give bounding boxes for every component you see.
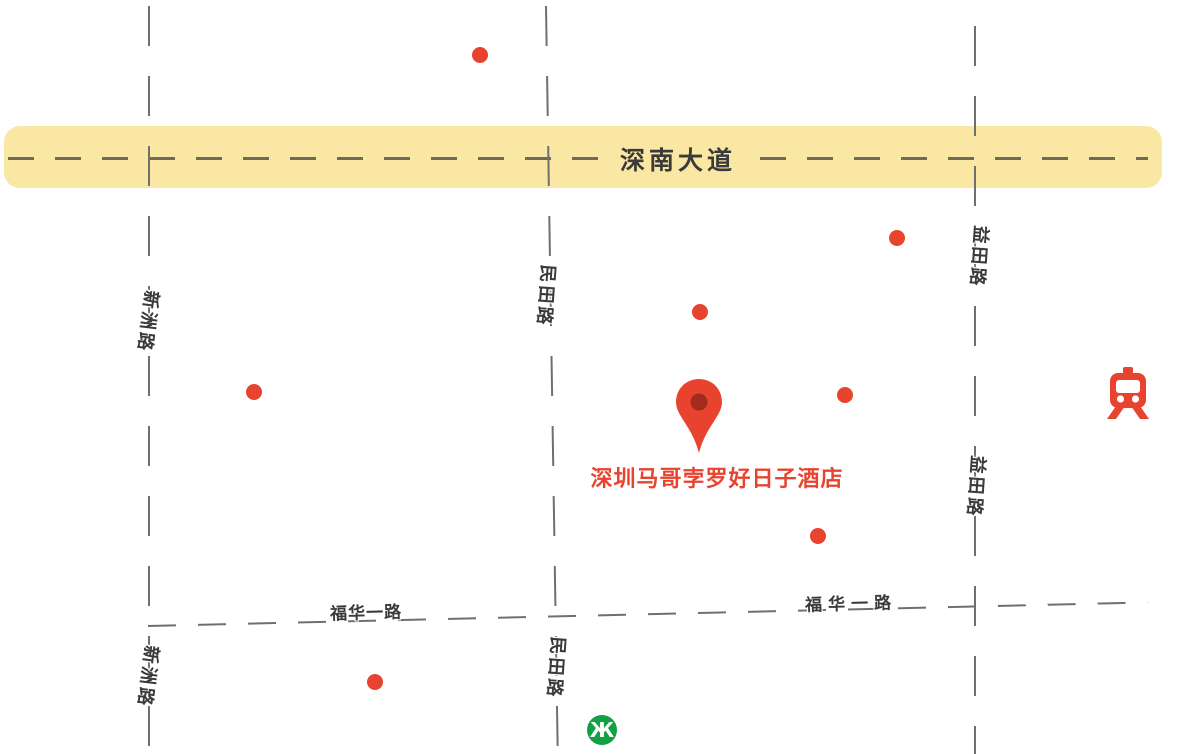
hotel-pin[interactable] [675,376,723,456]
metro-station-icon[interactable]: Ж [587,715,617,745]
poi-dot[interactable] [367,674,383,690]
poi-dot[interactable] [837,387,853,403]
road-label-fuhua-right: 福华一路 [805,588,898,615]
road-label-xinzhou-bottom: 新洲路 [132,644,165,710]
poi-dot[interactable] [472,47,488,63]
road-yitian [974,26,976,754]
metro-logo-glyph: Ж [590,718,614,742]
road-xinzhou [148,6,150,754]
road-fuhua [148,601,1148,627]
poi-dot[interactable] [810,528,826,544]
road-label-shennan-avenue: 深南大道 [610,141,746,177]
road-label-mintian-top: 民田路 [532,264,562,329]
poi-dot[interactable] [889,230,905,246]
road-label-mintian-bottom: 民田路 [542,636,572,701]
road-label-fuhua-left: 福华一路 [330,598,403,625]
road-label-yitian-bottom: 益田路 [962,455,992,520]
highway-centerline [8,157,1148,160]
poi-dot[interactable] [246,384,262,400]
road-label-yitian-top: 益田路 [965,225,995,290]
poi-dot[interactable] [692,304,708,320]
map-canvas[interactable]: 深南大道 新洲路 新洲路 民田路 民田路 益田路 益田路 福华一路 福华一路 深… [0,0,1186,754]
railway-station-icon[interactable] [1107,367,1149,419]
hotel-name-label: 深圳马哥孛罗好日子酒店 [590,461,843,493]
road-label-xinzhou-top: 新洲路 [132,289,165,355]
